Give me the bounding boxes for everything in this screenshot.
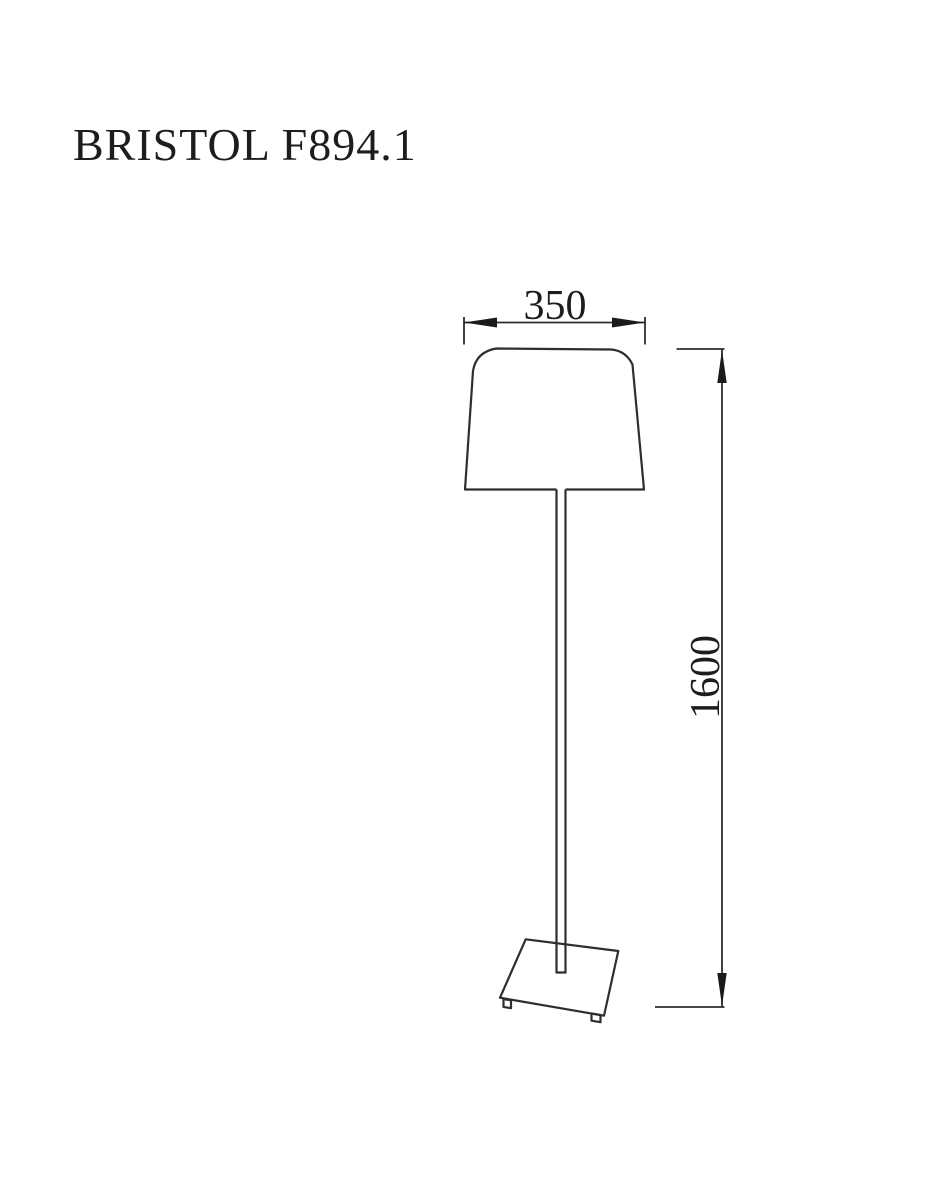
lamp-base xyxy=(500,939,618,1015)
floor-lamp-outline xyxy=(465,349,644,1023)
height-arrow-down-icon xyxy=(717,973,726,1006)
height-arrow-up-icon xyxy=(717,350,726,383)
lamp-shade-outline xyxy=(465,349,644,490)
lamp-dimension-drawing: 350 1600 xyxy=(0,0,927,1200)
height-dimension: 1600 xyxy=(655,349,729,1007)
lamp-base-foot-right xyxy=(592,1014,601,1023)
width-arrow-left-icon xyxy=(464,318,497,328)
width-dimension-label: 350 xyxy=(524,283,587,329)
width-arrow-right-icon xyxy=(612,318,645,328)
width-dimension: 350 xyxy=(464,283,645,345)
height-dimension-label: 1600 xyxy=(683,635,729,719)
lamp-base-foot-left xyxy=(504,999,512,1008)
lamp-stem xyxy=(557,490,566,973)
drawing-page: BRISTOL F894.1 350 xyxy=(0,0,927,1200)
